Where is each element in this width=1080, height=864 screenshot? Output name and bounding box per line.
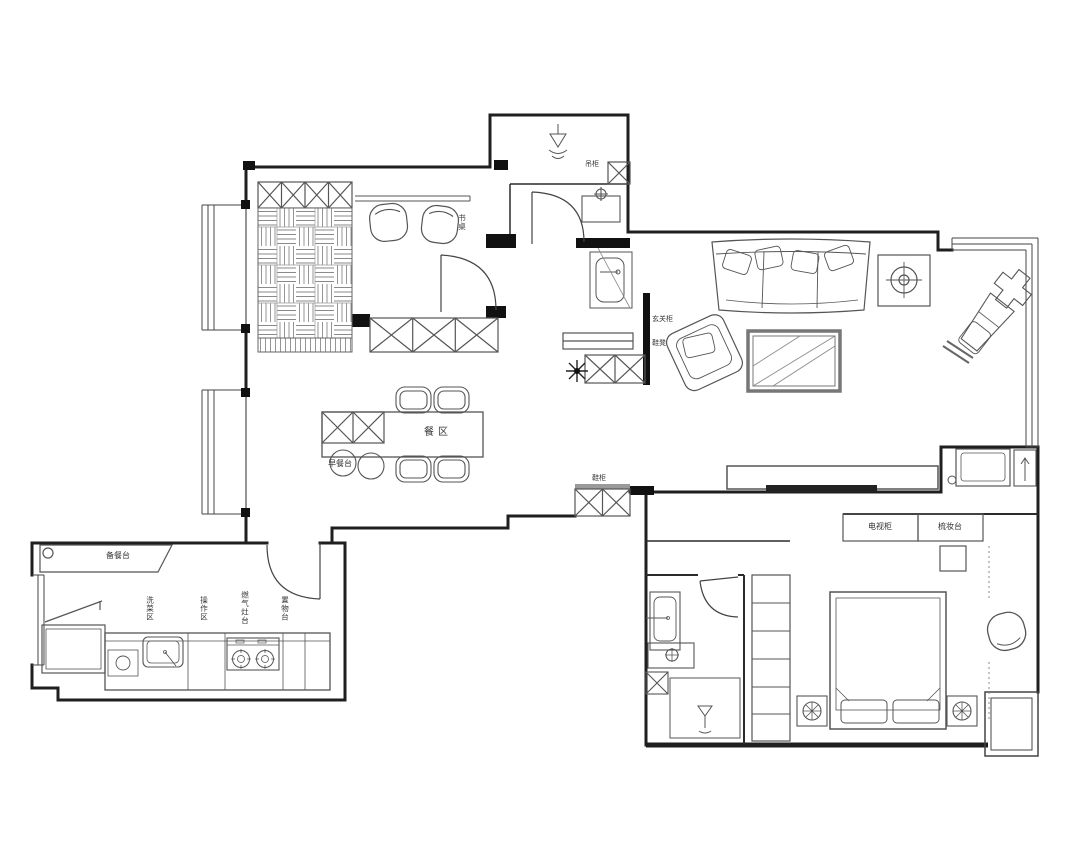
mat-edge-band	[258, 338, 352, 352]
label-kitchen-wash: 洗菜区	[146, 596, 154, 622]
corner-window	[952, 238, 1038, 447]
label-kitchen-stove: 燃气灶台	[241, 591, 249, 625]
lounge-chair	[943, 263, 1039, 363]
nightstand-left	[797, 696, 827, 726]
entry-plant	[566, 360, 588, 382]
study-chair-2	[420, 204, 460, 245]
armchair	[663, 311, 745, 393]
bath-basin	[646, 592, 680, 650]
door-kitchen	[267, 543, 320, 599]
fridge	[42, 601, 105, 673]
label-entry-cabinet: 玄关柜	[652, 316, 673, 323]
dining-chair	[396, 387, 431, 413]
dresser-stool	[940, 546, 966, 571]
door-utility	[532, 192, 584, 244]
bath-cabinet-box	[646, 672, 668, 694]
label-prep-counter: 备餐台	[106, 552, 130, 560]
door-study	[441, 255, 496, 312]
nightstand-right	[947, 696, 977, 726]
label-study-desk: 书桌	[458, 214, 466, 231]
shower	[670, 678, 740, 738]
floor-plan-svg	[0, 0, 1080, 864]
label-bedroom-tv-cabinet: 电视柜	[868, 523, 892, 531]
coffee-table	[748, 331, 840, 391]
entry-cabinet	[563, 333, 645, 383]
kitchen-sink	[143, 637, 183, 667]
dining-chair	[434, 387, 469, 413]
bedroom-chair	[984, 609, 1029, 654]
label-bedroom-dresser: 梳妆台	[938, 523, 962, 531]
label-shoe-cabinet: 鞋柜	[592, 475, 606, 482]
shoe-cabinet	[575, 489, 630, 516]
hall-vanity	[590, 248, 632, 308]
inner-walls	[246, 184, 1038, 744]
dining-island	[322, 412, 384, 443]
label-dining-zone: 餐区	[424, 428, 452, 438]
label-kitchen-storage: 置物台	[281, 596, 289, 622]
bay-window-left-top	[202, 205, 246, 330]
dining-chair	[434, 456, 469, 482]
dining-chair	[396, 456, 431, 482]
bath-drain-box	[648, 643, 694, 668]
tatami-mat	[258, 208, 352, 338]
tv	[766, 485, 877, 492]
door-bath	[700, 577, 738, 617]
bay-window-left-bottom	[202, 390, 246, 514]
kitchen-stove	[227, 638, 279, 670]
study-desk	[355, 196, 470, 201]
study-wardrobe	[370, 318, 498, 352]
side-table-lamp	[878, 255, 930, 306]
media-appliance	[948, 449, 1036, 486]
label-utility-cabinet: 吊柜	[585, 161, 599, 168]
wardrobe	[752, 575, 790, 741]
shoe-cabinet-top-band	[575, 484, 630, 489]
kitchen-counter	[105, 633, 330, 690]
sofa	[712, 239, 870, 313]
bed	[830, 592, 946, 729]
study-cabinet-top	[258, 182, 352, 208]
toilet-basin	[582, 187, 620, 222]
label-breakfast-bar: 早餐台	[328, 460, 352, 468]
pendant-light	[549, 124, 567, 159]
floor-plan: 书桌 吊柜 玄关柜 鞋凳 鞋柜 餐区 早餐台 备餐台 洗菜区 操作区 燃气灶台 …	[0, 0, 1080, 864]
bedroom-se-window	[985, 692, 1038, 756]
label-entry-bench: 鞋凳	[652, 340, 666, 347]
study-chair-1	[368, 202, 409, 243]
label-kitchen-prep: 操作区	[200, 596, 208, 622]
bedroom-wall-cabinets	[843, 514, 983, 571]
